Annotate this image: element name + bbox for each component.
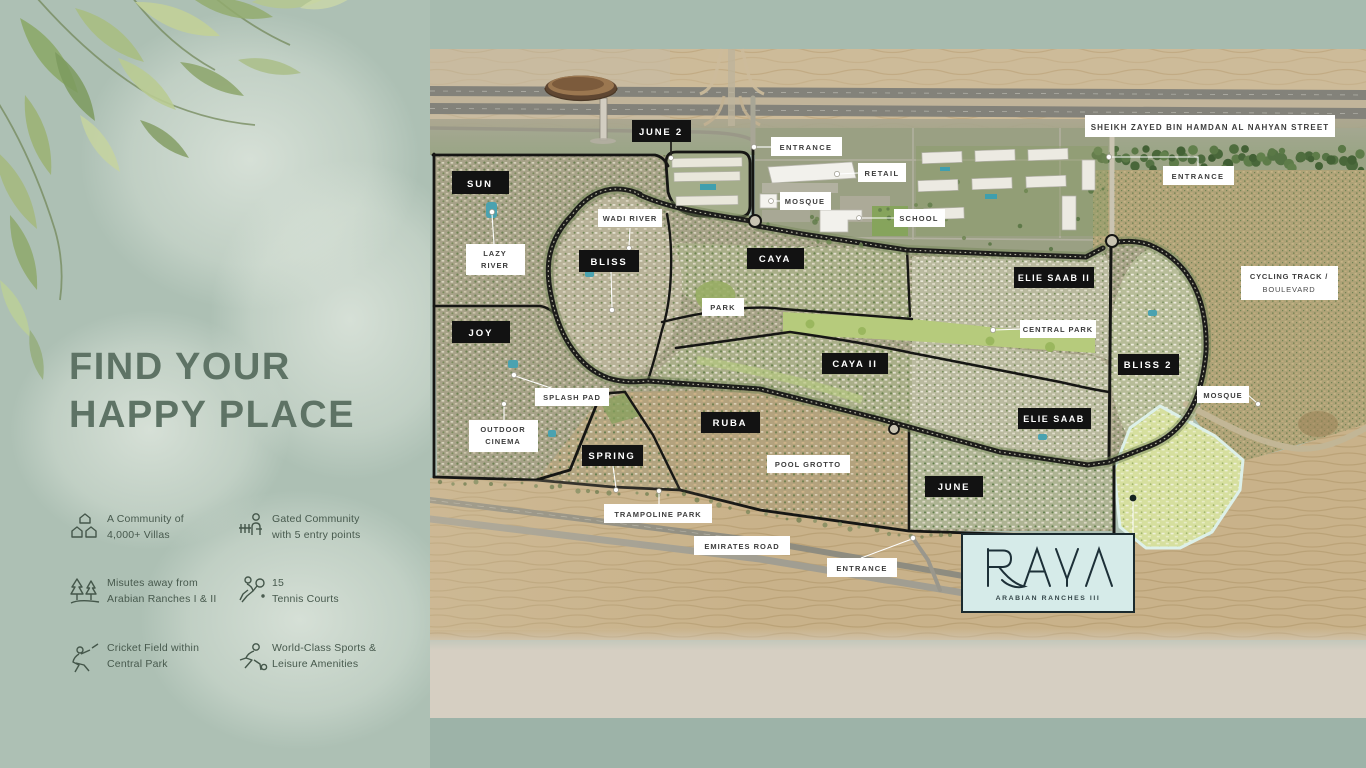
svg-text:RUBA: RUBA: [713, 418, 748, 429]
svg-text:ENTRANCE: ENTRANCE: [836, 564, 887, 573]
svg-text:SCHOOL: SCHOOL: [899, 214, 938, 223]
svg-text:BLISS 2: BLISS 2: [1124, 360, 1173, 371]
svg-text:BLISS: BLISS: [591, 257, 628, 268]
svg-text:MOSQUE: MOSQUE: [785, 197, 826, 206]
svg-text:JOY: JOY: [468, 328, 493, 339]
svg-text:CAYA II: CAYA II: [832, 359, 877, 370]
svg-text:CAYA: CAYA: [759, 254, 791, 265]
svg-text:CENTRAL PARK: CENTRAL PARK: [1023, 325, 1093, 334]
svg-text:SHEIKH ZAYED BIN HAMDAN AL NAH: SHEIKH ZAYED BIN HAMDAN AL NAHYAN STREET: [1091, 123, 1330, 132]
svg-text:JUNE 2: JUNE 2: [639, 127, 683, 138]
svg-text:ENTRANCE: ENTRANCE: [780, 143, 833, 152]
svg-text:ELIE SAAB II: ELIE SAAB II: [1018, 273, 1090, 283]
svg-text:TRAMPOLINE PARK: TRAMPOLINE PARK: [614, 510, 701, 519]
svg-text:BOULEVARD: BOULEVARD: [1263, 285, 1316, 294]
svg-text:ENTRANCE: ENTRANCE: [1172, 172, 1225, 181]
svg-text:LAZY: LAZY: [483, 249, 507, 258]
svg-text:MOSQUE: MOSQUE: [1203, 391, 1242, 400]
svg-text:SPLASH PAD: SPLASH PAD: [543, 393, 601, 402]
svg-text:SUN: SUN: [467, 179, 493, 190]
svg-text:PARK: PARK: [710, 303, 736, 312]
svg-text:RIVER: RIVER: [481, 261, 509, 270]
svg-text:ELIE SAAB: ELIE SAAB: [1023, 414, 1085, 424]
svg-text:POOL GROTTO: POOL GROTTO: [775, 460, 841, 469]
svg-text:WADI RIVER: WADI RIVER: [603, 214, 658, 223]
svg-text:OUTDOOR: OUTDOOR: [480, 425, 525, 434]
svg-text:SPRING: SPRING: [588, 451, 635, 462]
svg-text:JUNE: JUNE: [938, 482, 971, 493]
svg-text:ARABIAN RANCHES III: ARABIAN RANCHES III: [996, 595, 1101, 602]
svg-text:EMIRATES ROAD: EMIRATES ROAD: [704, 542, 779, 551]
svg-text:CYCLING TRACK /: CYCLING TRACK /: [1250, 272, 1328, 281]
svg-text:RETAIL: RETAIL: [865, 169, 900, 178]
svg-text:CINEMA: CINEMA: [485, 437, 521, 446]
